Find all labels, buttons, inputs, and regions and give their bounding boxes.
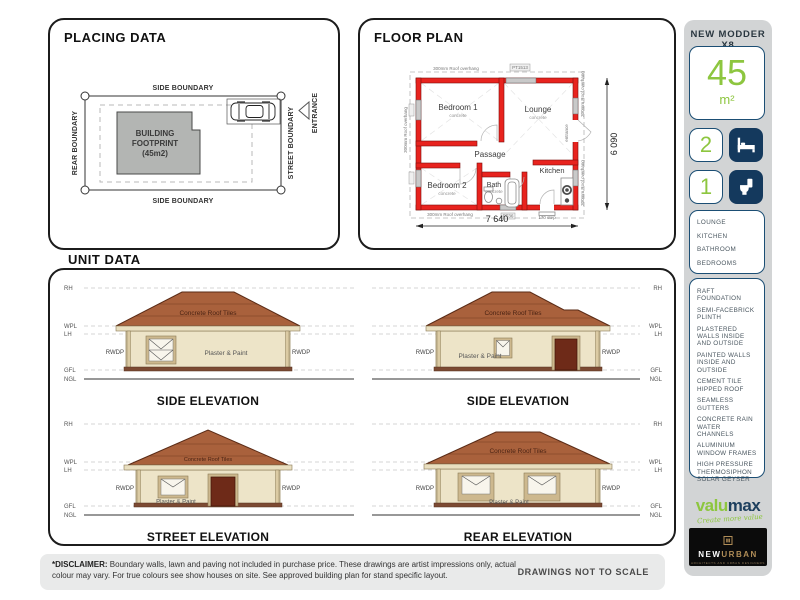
elevation-caption: STREET ELEVATION <box>58 530 358 544</box>
street-boundary-label: STREET BOUNDARY <box>288 107 295 180</box>
window-tag: PT1513 <box>512 65 528 70</box>
downpipe <box>596 469 600 504</box>
boundary-peg <box>277 186 285 194</box>
elevation-caption: REAR ELEVATION <box>368 530 668 544</box>
roof-material-label: Concrete Roof Tiles <box>179 310 237 317</box>
level-label: LH <box>654 468 662 474</box>
downpipe <box>276 470 280 504</box>
front-door <box>208 474 238 506</box>
room-label-kitchen: Kitchen <box>539 166 564 175</box>
roof-material-label: Concrete Roof Tiles <box>489 448 547 455</box>
newurban-mark-icon <box>689 532 767 550</box>
feature-item: HIGH PRESSURE THERMOSIPHON SOLAR GEYSER <box>697 461 757 483</box>
front-door <box>552 336 580 370</box>
house-roof <box>116 292 300 326</box>
newurban-subtitle: ARCHITECTS AND URBAN DESIGNERS <box>689 561 767 565</box>
rooms-list-item: LOUNGE <box>697 219 757 226</box>
floor-plan-drawing: PT1513 PT36 <box>360 20 674 244</box>
level-label: WPL <box>649 460 663 466</box>
window <box>146 336 176 364</box>
unit-data-title: UNIT DATA <box>62 252 147 267</box>
downpipe <box>137 470 141 504</box>
overhang-label-left: 300mm Roof overhang <box>403 107 408 153</box>
feature-item: RAFT FOUNDATION <box>697 288 757 302</box>
room-label-bedroom2: Bedroom 2 <box>427 181 467 190</box>
entrance-door-gap <box>573 120 579 142</box>
level-label: WPL <box>64 324 78 330</box>
feature-item: CEMENT TILE HIPPED ROOF <box>697 378 757 392</box>
wall-finish-label: Plaster & Paint <box>459 353 502 360</box>
room-sub: concrete <box>485 189 503 194</box>
placing-data-title: PLACING DATA <box>64 30 166 45</box>
fascia <box>116 326 300 331</box>
entrance-label: ENTRANCE <box>312 93 319 134</box>
house-roof <box>426 292 610 326</box>
level-label: LH <box>64 332 72 338</box>
plinth <box>124 367 292 371</box>
step-label: 170 step <box>538 215 556 220</box>
bedroom-count-box: 2 <box>689 128 723 162</box>
toilet-icon <box>735 176 757 198</box>
elevation-cell: RH WPL LH GFL NGL <box>368 412 668 544</box>
side-boundary-bottom-label: SIDE BOUNDARY <box>152 198 213 205</box>
room-sub: concrete <box>438 191 456 196</box>
area-box: 45 m² <box>689 46 765 120</box>
level-label: GFL <box>650 368 662 374</box>
room-label-bedroom1: Bedroom 1 <box>438 103 478 112</box>
overhang-label-right-top: 300mm Roof overhang <box>580 71 585 117</box>
rwdp-label: RWDP <box>602 486 620 492</box>
bedroom-count: 2 <box>690 129 722 160</box>
rooms-list-item: BATHROOM <box>697 246 757 253</box>
newurban-logo-box: NEWURBAN ARCHITECTS AND URBAN DESIGNERS <box>689 528 767 566</box>
street-elevation-drawing: RH WPL LH GFL NGL <box>58 412 358 524</box>
wall-finish-label: Plaster & Paint <box>489 500 529 506</box>
car-icon <box>231 101 275 121</box>
unit-data-panel: RH WPL LH GFL NGL Concrete Roof Tiles <box>48 268 676 546</box>
level-label: RH <box>653 422 662 428</box>
rwdp-label: RWDP <box>416 486 434 492</box>
level-label: GFL <box>64 368 76 374</box>
svg-text:7 640: 7 640 <box>486 214 509 224</box>
overhang-label-right-bottom: 300mm Roof overhang <box>580 160 585 206</box>
rwdp-label: RWDP <box>106 350 124 356</box>
entrance-arrow-icon <box>299 102 309 119</box>
footprint-label: (45m2) <box>142 149 168 158</box>
footer-bar: *DISCLAIMER: Boundary walls, lawn and pa… <box>40 554 665 590</box>
feature-item: SEMI-FACEBRICK PLINTH <box>697 307 757 321</box>
area-value: 45 <box>690 55 764 91</box>
rooms-list-item: KITCHEN <box>697 233 757 240</box>
bed-icon <box>735 134 757 156</box>
window <box>158 476 188 498</box>
disclaimer-label: *DISCLAIMER: <box>52 560 108 569</box>
bathroom-icon-box <box>729 170 763 204</box>
downpipe <box>437 331 441 368</box>
level-label: NGL <box>64 377 77 383</box>
elevation-cell: RH WPL LH GFL NGL <box>58 412 358 544</box>
level-label: WPL <box>649 324 663 330</box>
room-label-bath: Bath <box>487 182 502 189</box>
boundary-peg <box>81 186 89 194</box>
bathroom-count-box: 1 <box>689 170 723 204</box>
fascia <box>424 464 612 469</box>
placing-data-diagram: BUILDING FOOTPRINT (45m2) ENTRANCE SIDE … <box>50 20 338 232</box>
level-label: LH <box>64 468 72 474</box>
fascia <box>426 326 610 331</box>
rooms-list-item: BEDROOMS <box>697 260 757 267</box>
elevation-caption: SIDE ELEVATION <box>368 394 668 408</box>
room-sub: concrete <box>529 115 547 120</box>
rwdp-label: RWDP <box>292 350 310 356</box>
window <box>524 473 560 501</box>
boundary-peg <box>81 92 89 100</box>
window <box>458 473 494 501</box>
elevation-cell: RH WPL LH GFL NGL <box>368 276 668 408</box>
level-label: RH <box>64 422 73 428</box>
level-label: RH <box>653 286 662 292</box>
wall-finish-label: Plaster & Paint <box>156 500 196 506</box>
side-boundary-top-label: SIDE BOUNDARY <box>152 85 213 92</box>
level-label: NGL <box>64 513 77 519</box>
fascia <box>124 465 292 470</box>
kitchen-door-gap <box>540 205 554 211</box>
room-sub: concrete <box>449 113 467 118</box>
brochure-page: PLACING DATA BUILDING FOOTPRINT (45m2) <box>0 0 800 600</box>
level-label: NGL <box>650 513 663 519</box>
downpipe <box>286 331 290 368</box>
room-label-passage: Passage <box>474 150 506 159</box>
elevation-cell: RH WPL LH GFL NGL Concrete Roof Tiles <box>58 276 358 408</box>
wall-finish-label: Plaster & Paint <box>205 350 248 357</box>
level-label: GFL <box>650 504 662 510</box>
level-label: NGL <box>650 377 663 383</box>
elevation-caption: SIDE ELEVATION <box>58 394 358 408</box>
placing-data-panel: PLACING DATA BUILDING FOOTPRINT (45m2) <box>48 18 340 250</box>
bedroom-icon-box <box>729 128 763 162</box>
room-label-lounge: Lounge <box>525 105 552 114</box>
feature-item: PAINTED WALLS INSIDE AND OUTSIDE <box>697 352 757 374</box>
feature-item: ALUMINIUM WINDOW FRAMES <box>697 442 757 456</box>
rear-boundary-label: REAR BOUNDARY <box>72 111 79 176</box>
not-to-scale-label: DRAWINGS NOT TO SCALE <box>518 567 649 577</box>
bathroom-count: 1 <box>690 171 722 202</box>
rwdp-label: RWDP <box>116 486 134 492</box>
rwdp-label: RWDP <box>602 350 620 356</box>
height-dimension: 6 090 <box>605 78 619 210</box>
overhang-label-bottom: 300mm Roof overhang <box>427 212 473 217</box>
floor-plan-panel: FLOOR PLAN <box>358 18 676 250</box>
newurban-wordmark: NEWURBAN <box>689 551 767 559</box>
side-elevation-drawing-1: RH WPL LH GFL NGL Concrete Roof Tiles <box>58 276 358 388</box>
feature-item: SEAMLESS GUTTERS <box>697 397 757 411</box>
feature-item: CONCRETE RAIN WATER CHANNELS <box>697 416 757 438</box>
downpipe <box>437 469 441 504</box>
features-list: RAFT FOUNDATION SEMI-FACEBRICK PLINTH PL… <box>689 278 765 478</box>
downpipe <box>127 331 131 368</box>
feature-item: PLASTERED WALLS INSIDE AND OUTSIDE <box>697 326 757 348</box>
side-elevation-drawing-2: RH WPL LH GFL NGL <box>368 276 668 388</box>
footprint-label: BUILDING <box>136 129 175 138</box>
rear-elevation-drawing: RH WPL LH GFL NGL <box>368 412 668 524</box>
footprint-label: FOOTPRINT <box>132 139 178 148</box>
rwdp-label: RWDP <box>416 350 434 356</box>
rooms-list: LOUNGE KITCHEN BATHROOM BEDROOMS <box>689 210 765 274</box>
downpipe <box>596 331 600 368</box>
overhang-label-top: 300mm Roof overhang <box>433 66 479 71</box>
floor-plan-title: FLOOR PLAN <box>374 30 464 45</box>
svg-text:6 090: 6 090 <box>609 133 619 156</box>
area-unit: m² <box>690 92 764 107</box>
level-label: WPL <box>64 460 78 466</box>
roof-material-label: Concrete Roof Tiles <box>184 457 233 463</box>
level-label: GFL <box>64 504 76 510</box>
disclaimer-text: *DISCLAIMER: Boundary walls, lawn and pa… <box>52 560 522 582</box>
entrance-plan-label: entrance <box>564 124 569 142</box>
roof-material-label: Concrete Roof Tiles <box>484 310 542 317</box>
spec-sidebar: NEW MODDER X8 45 m² 2 1 <box>684 20 772 576</box>
level-label: RH <box>64 286 73 292</box>
level-label: LH <box>654 332 662 338</box>
rwdp-label: RWDP <box>282 486 300 492</box>
